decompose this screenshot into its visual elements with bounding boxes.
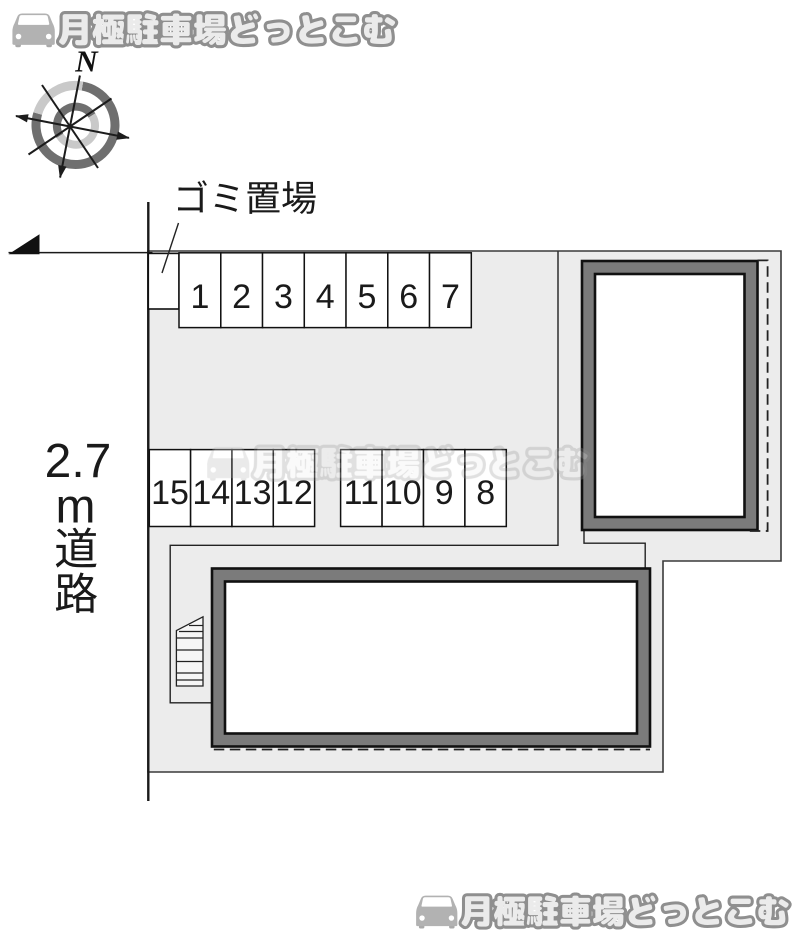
svg-text:8: 8: [476, 474, 495, 512]
svg-text:15: 15: [151, 474, 189, 512]
svg-text:1: 1: [190, 278, 209, 316]
svg-text:m: m: [56, 481, 96, 534]
svg-text:N: N: [74, 44, 99, 79]
svg-text:2: 2: [232, 278, 251, 316]
svg-text:5: 5: [357, 278, 376, 316]
svg-text:13: 13: [234, 474, 272, 512]
svg-text:3: 3: [274, 278, 293, 316]
svg-text:6: 6: [399, 278, 418, 316]
svg-text:7: 7: [441, 278, 460, 316]
svg-text:4: 4: [316, 278, 335, 316]
